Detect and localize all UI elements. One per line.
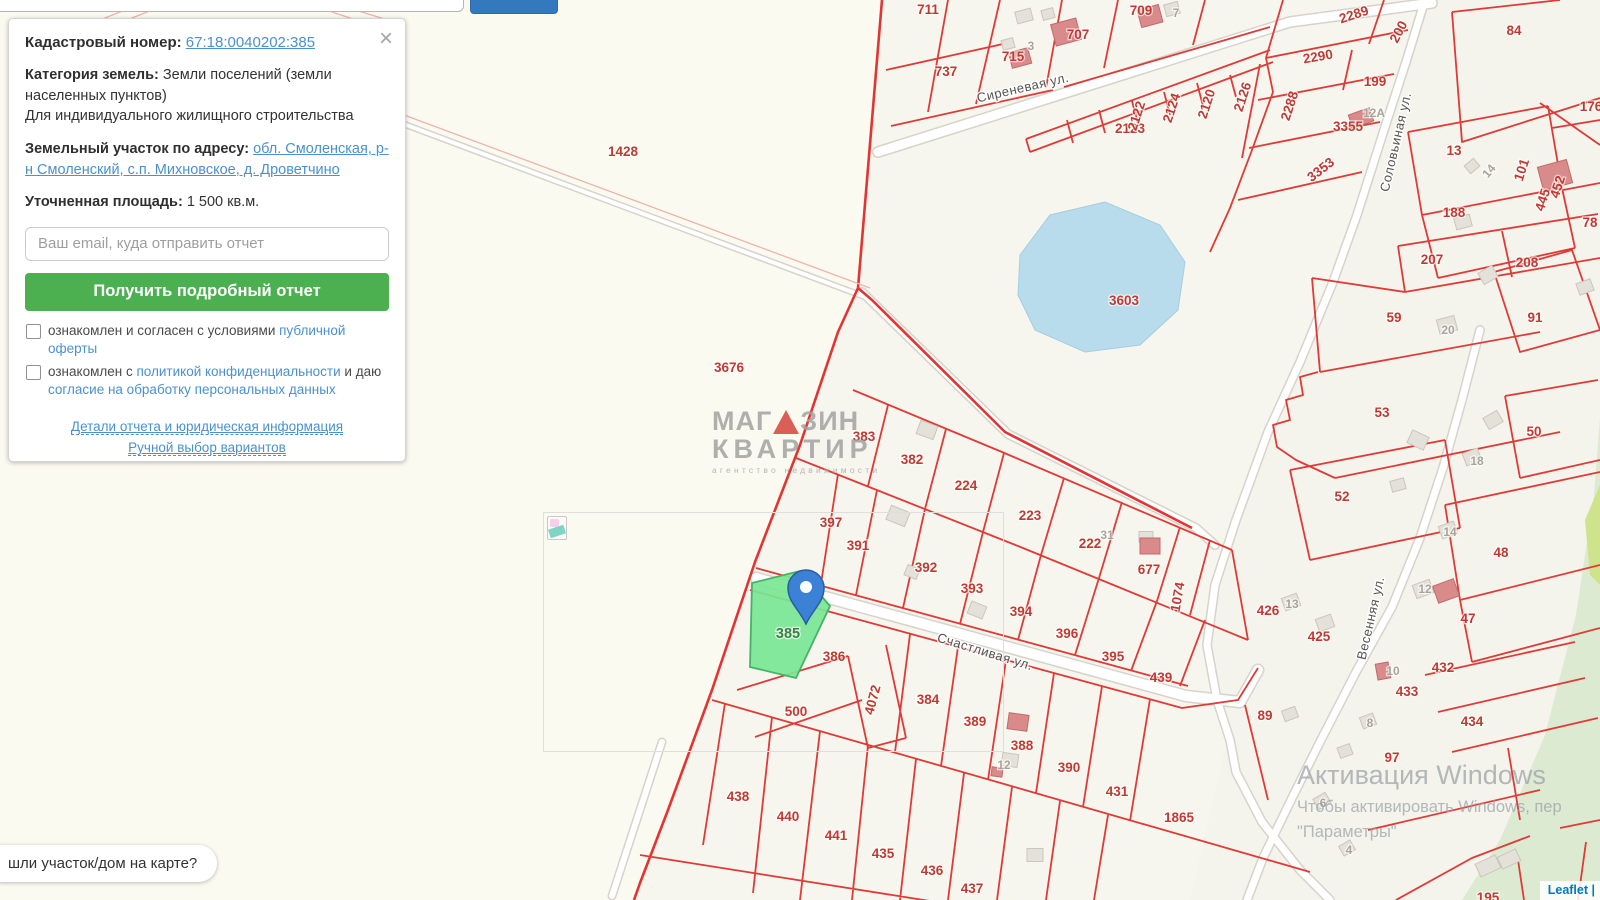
parcel-label: 8 bbox=[1367, 716, 1374, 730]
parcel-label: 89 bbox=[1257, 708, 1272, 723]
parcel-label: 436 bbox=[921, 863, 944, 878]
parcel-label: 396 bbox=[1056, 626, 1079, 641]
building-footprint bbox=[1027, 849, 1043, 862]
parcel-label: 176 bbox=[1580, 99, 1600, 114]
address-label: Земельный участок по адресу: bbox=[25, 141, 249, 157]
parcel-label: 425 bbox=[1308, 629, 1331, 644]
parcel-label: 4 bbox=[1346, 843, 1353, 857]
parcel-label: 6 bbox=[1320, 796, 1327, 810]
privacy-checkbox-label: ознакомлен с bbox=[48, 364, 133, 379]
parcel-label: 13 bbox=[1285, 597, 1299, 611]
area-value: 1 500 кв.м. bbox=[187, 194, 259, 210]
parcel-label: 52 bbox=[1334, 489, 1349, 504]
map-help-tooltip-text: шли участок/дом на карте? bbox=[8, 855, 197, 872]
parcel-label: 715 bbox=[1002, 49, 1025, 64]
area-label: Уточненная площадь: bbox=[25, 194, 183, 210]
parcel-info-panel: × Кадастровый номер: 67:18:0040202:385 К… bbox=[8, 18, 406, 462]
map-application: 7117377153707709721232122212421202126228… bbox=[0, 0, 1600, 900]
parcel-label: 10 bbox=[1386, 664, 1400, 678]
manual-select-link[interactable]: Ручной выбор вариантов bbox=[128, 440, 286, 456]
parcel-label: 199 bbox=[1364, 74, 1387, 89]
parcel-label: 439 bbox=[1150, 670, 1173, 685]
parcel-label: 47 bbox=[1460, 611, 1475, 626]
search-input[interactable] bbox=[0, 0, 464, 12]
parcel-label: 84 bbox=[1506, 23, 1522, 38]
parcel-label: 13 bbox=[1446, 143, 1462, 158]
land-category-label: Категория земель: bbox=[25, 67, 159, 83]
parcel-label: 434 bbox=[1461, 714, 1484, 729]
parcel-label: 382 bbox=[901, 452, 924, 467]
parcel-label: 12A bbox=[1363, 106, 1385, 120]
parcel-label: 388 bbox=[1011, 738, 1034, 753]
email-field[interactable] bbox=[25, 227, 389, 261]
parcel-label: 7 bbox=[1173, 6, 1180, 20]
parcel-label: 394 bbox=[1010, 604, 1033, 619]
report-details-link[interactable]: Детали отчета и юридическая информация bbox=[71, 419, 343, 435]
parcel-label: 224 bbox=[955, 478, 978, 493]
parcel-label: 441 bbox=[825, 828, 848, 843]
building-footprint bbox=[1140, 538, 1160, 554]
parcel-label: 207 bbox=[1421, 252, 1444, 267]
parcel-label: 737 bbox=[935, 64, 958, 79]
get-report-button[interactable]: Получить подробный отчет bbox=[25, 273, 389, 311]
parcel-label: 383 bbox=[853, 429, 876, 444]
leaflet-attribution[interactable]: Leaflet | bbox=[1540, 881, 1600, 900]
parcel-label: 1865 bbox=[1164, 810, 1195, 825]
parcel-label: 91 bbox=[1527, 310, 1543, 325]
parcel-label: 438 bbox=[727, 789, 750, 804]
parcel-label: 677 bbox=[1138, 562, 1161, 577]
broken-image-icon bbox=[547, 516, 567, 540]
close-icon[interactable]: × bbox=[379, 27, 393, 51]
parcel-label: 1428 bbox=[608, 144, 639, 159]
parcel-label: 18 bbox=[1470, 454, 1484, 468]
privacy-checkbox[interactable] bbox=[26, 365, 41, 380]
broken-image-frame bbox=[543, 512, 1004, 752]
offer-checkbox[interactable] bbox=[26, 324, 41, 339]
parcel-label: 14 bbox=[1443, 525, 1457, 539]
cadastral-number-label: Кадастровый номер: bbox=[25, 34, 182, 51]
parcel-label: 432 bbox=[1432, 660, 1455, 675]
parcel-label: 390 bbox=[1058, 760, 1081, 775]
parcel-label: 433 bbox=[1396, 684, 1419, 699]
parcel-label: 59 bbox=[1386, 310, 1401, 325]
parcel-label: 20 bbox=[1441, 323, 1455, 337]
parcel-label: 709 bbox=[1130, 3, 1153, 18]
privacy-policy-link[interactable]: политикой конфиденциальности bbox=[136, 364, 340, 379]
parcel-label: 222 bbox=[1079, 536, 1102, 551]
parcel-label: 707 bbox=[1067, 27, 1090, 42]
land-use-value: Для индивидуального жилищного строительс… bbox=[25, 106, 389, 127]
parcel-label: 395 bbox=[1102, 649, 1125, 664]
parcel-label: 50 bbox=[1526, 424, 1541, 439]
parcel-label: 78 bbox=[1582, 215, 1598, 230]
parcel-label: 188 bbox=[1443, 205, 1466, 220]
leaflet-link[interactable]: Leaflet | bbox=[1548, 883, 1595, 897]
search-button[interactable] bbox=[470, 0, 558, 14]
parcel-label: 711 bbox=[917, 2, 939, 17]
parcel-label: 208 bbox=[1516, 255, 1539, 270]
parcel-label: 3355 bbox=[1333, 119, 1364, 134]
parcel-label: 440 bbox=[777, 809, 800, 824]
parcel-label: 12 bbox=[997, 758, 1011, 772]
building-footprint bbox=[1007, 713, 1029, 732]
parcel-label: 223 bbox=[1019, 508, 1042, 523]
parcel-label: 435 bbox=[872, 846, 895, 861]
parcel-label: 437 bbox=[961, 881, 984, 896]
parcel-label: 3 bbox=[1028, 39, 1035, 53]
offer-checkbox-label: ознакомлен и согласен с условиями bbox=[48, 323, 275, 338]
privacy-checkbox-label2: и даю bbox=[344, 364, 381, 379]
parcel-label: 12 bbox=[1418, 582, 1432, 596]
personal-data-link[interactable]: согласие на обработку персональных данны… bbox=[48, 382, 336, 397]
parcel-label: 3676 bbox=[714, 360, 745, 375]
parcel-label: 195 bbox=[1477, 890, 1500, 900]
parcel-label: 431 bbox=[1106, 784, 1129, 799]
parcel-label: 426 bbox=[1257, 603, 1280, 618]
parcel-label: 31 bbox=[1100, 528, 1114, 542]
parcel-label: 48 bbox=[1493, 545, 1509, 560]
parcel-label: 53 bbox=[1374, 405, 1390, 420]
parcel-label: 97 bbox=[1384, 750, 1399, 765]
cadastral-number-link[interactable]: 67:18:0040202:385 bbox=[186, 34, 315, 51]
map-help-tooltip[interactable]: шли участок/дом на карте? bbox=[0, 845, 217, 882]
parcel-label: 3603 bbox=[1109, 293, 1140, 308]
